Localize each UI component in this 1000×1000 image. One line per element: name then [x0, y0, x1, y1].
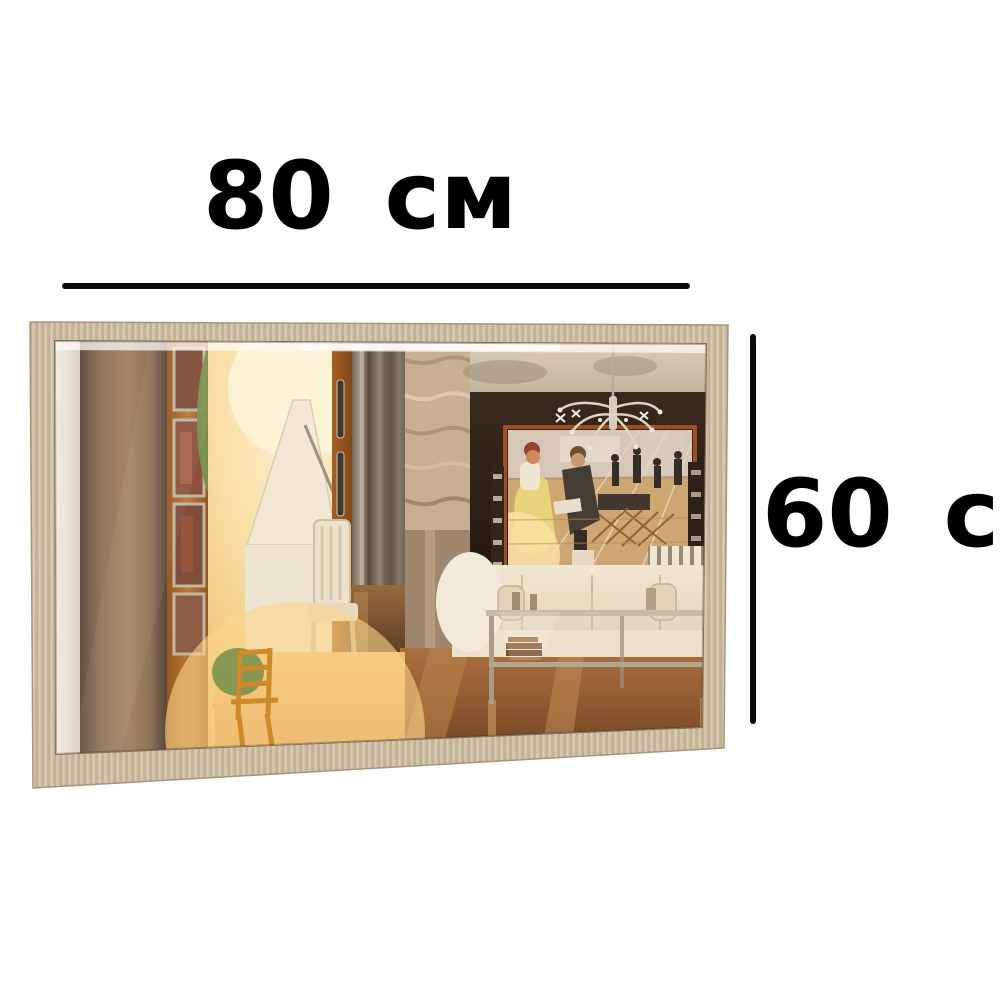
mirror-product-image — [0, 0, 1000, 1000]
glass-warm-tint — [55, 338, 709, 758]
product-photo-canvas: 80 см 60 см — [0, 0, 1000, 1000]
